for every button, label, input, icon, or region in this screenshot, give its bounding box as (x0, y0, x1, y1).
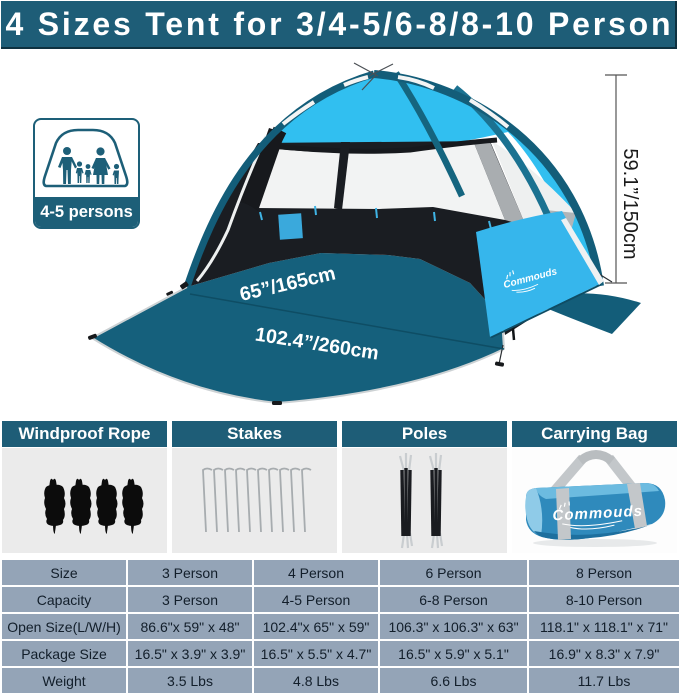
svg-text:59.1”/150cm: 59.1”/150cm (619, 148, 641, 259)
